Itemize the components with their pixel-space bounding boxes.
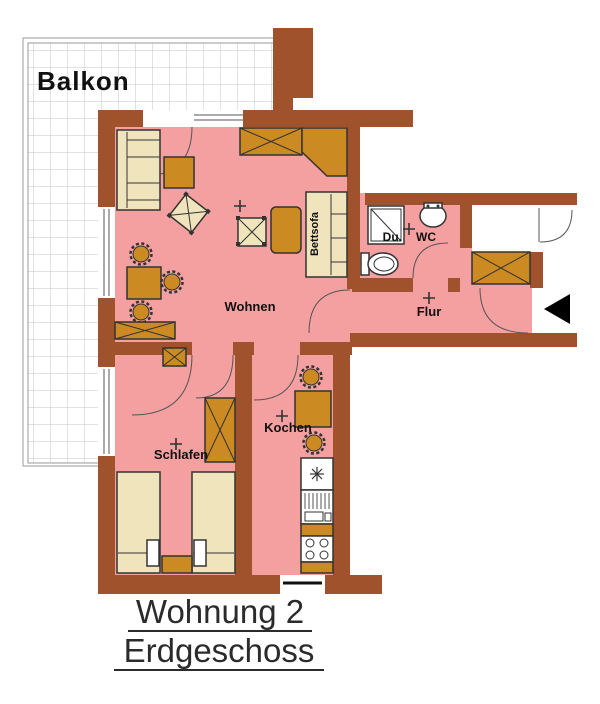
room-label-hallway: Flur — [417, 304, 442, 319]
wall-segment — [243, 110, 413, 127]
nightstand — [162, 556, 192, 573]
wardrobe-bedroom — [205, 398, 235, 462]
kitchen-cabinet — [301, 458, 333, 490]
wardrobe-hall — [472, 252, 530, 284]
wall-segment — [325, 575, 382, 594]
wall-segment — [98, 575, 282, 594]
sofa-bed: Bettsofa — [306, 192, 347, 277]
bed-2 — [192, 472, 235, 573]
star-symbol — [310, 467, 324, 481]
room-label-kitchen: Kochen — [264, 420, 312, 435]
wall-segment — [352, 278, 413, 292]
bed-1 — [117, 472, 160, 573]
coffee-table — [271, 207, 301, 253]
kitchen-sink — [301, 490, 333, 524]
living-window-gap — [98, 207, 115, 298]
bedroom-window-gap — [98, 367, 115, 456]
wall-segment — [333, 342, 350, 590]
room-label-wc: WC — [416, 230, 436, 244]
balcony-door-gap — [143, 110, 243, 127]
entry-arrow — [544, 294, 570, 324]
wall-segment — [350, 333, 577, 347]
wall-segment — [98, 110, 115, 207]
reading-chair — [236, 216, 266, 246]
toilet — [361, 253, 398, 275]
kitchen-stove — [301, 536, 333, 562]
title-line-1: Wohnung 2 — [136, 593, 304, 630]
kitchen-counter — [301, 562, 333, 573]
kitchen-chair — [301, 367, 322, 388]
dining-chair — [131, 244, 152, 265]
room-label-bedroom: Schlafen — [154, 447, 208, 462]
dining-chair — [131, 302, 152, 323]
sofa-bed-label: Bettsofa — [309, 211, 321, 256]
sofa — [117, 130, 160, 210]
balcony-label: Balkon — [37, 66, 130, 96]
wall-segment — [235, 342, 252, 576]
sideboard — [115, 322, 175, 339]
floor-plan-page: Balkon — [0, 0, 600, 704]
dining-chair — [162, 272, 183, 293]
wall-segment — [347, 125, 360, 289]
wall-segment — [273, 28, 313, 98]
washbasin — [420, 203, 446, 227]
wall-segment — [98, 456, 115, 578]
wall-segment — [98, 296, 115, 346]
entry-niche — [472, 205, 577, 252]
room-label-shower: Du. — [383, 230, 402, 244]
room-label-living: Wohnen — [224, 299, 275, 314]
wall-segment — [365, 193, 577, 205]
kitchen-chair — [304, 433, 325, 454]
plan-title: Wohnung 2 Erdgeschoss — [114, 593, 324, 670]
title-line-2: Erdgeschoss — [124, 632, 315, 669]
shelf-bedroom — [163, 348, 186, 366]
kitchen-counter — [301, 524, 333, 536]
wall-segment — [448, 278, 460, 292]
floor-plan: Balkon — [0, 0, 600, 704]
wall-segment — [460, 205, 472, 248]
dining-table — [127, 267, 161, 299]
side-table — [164, 157, 194, 188]
